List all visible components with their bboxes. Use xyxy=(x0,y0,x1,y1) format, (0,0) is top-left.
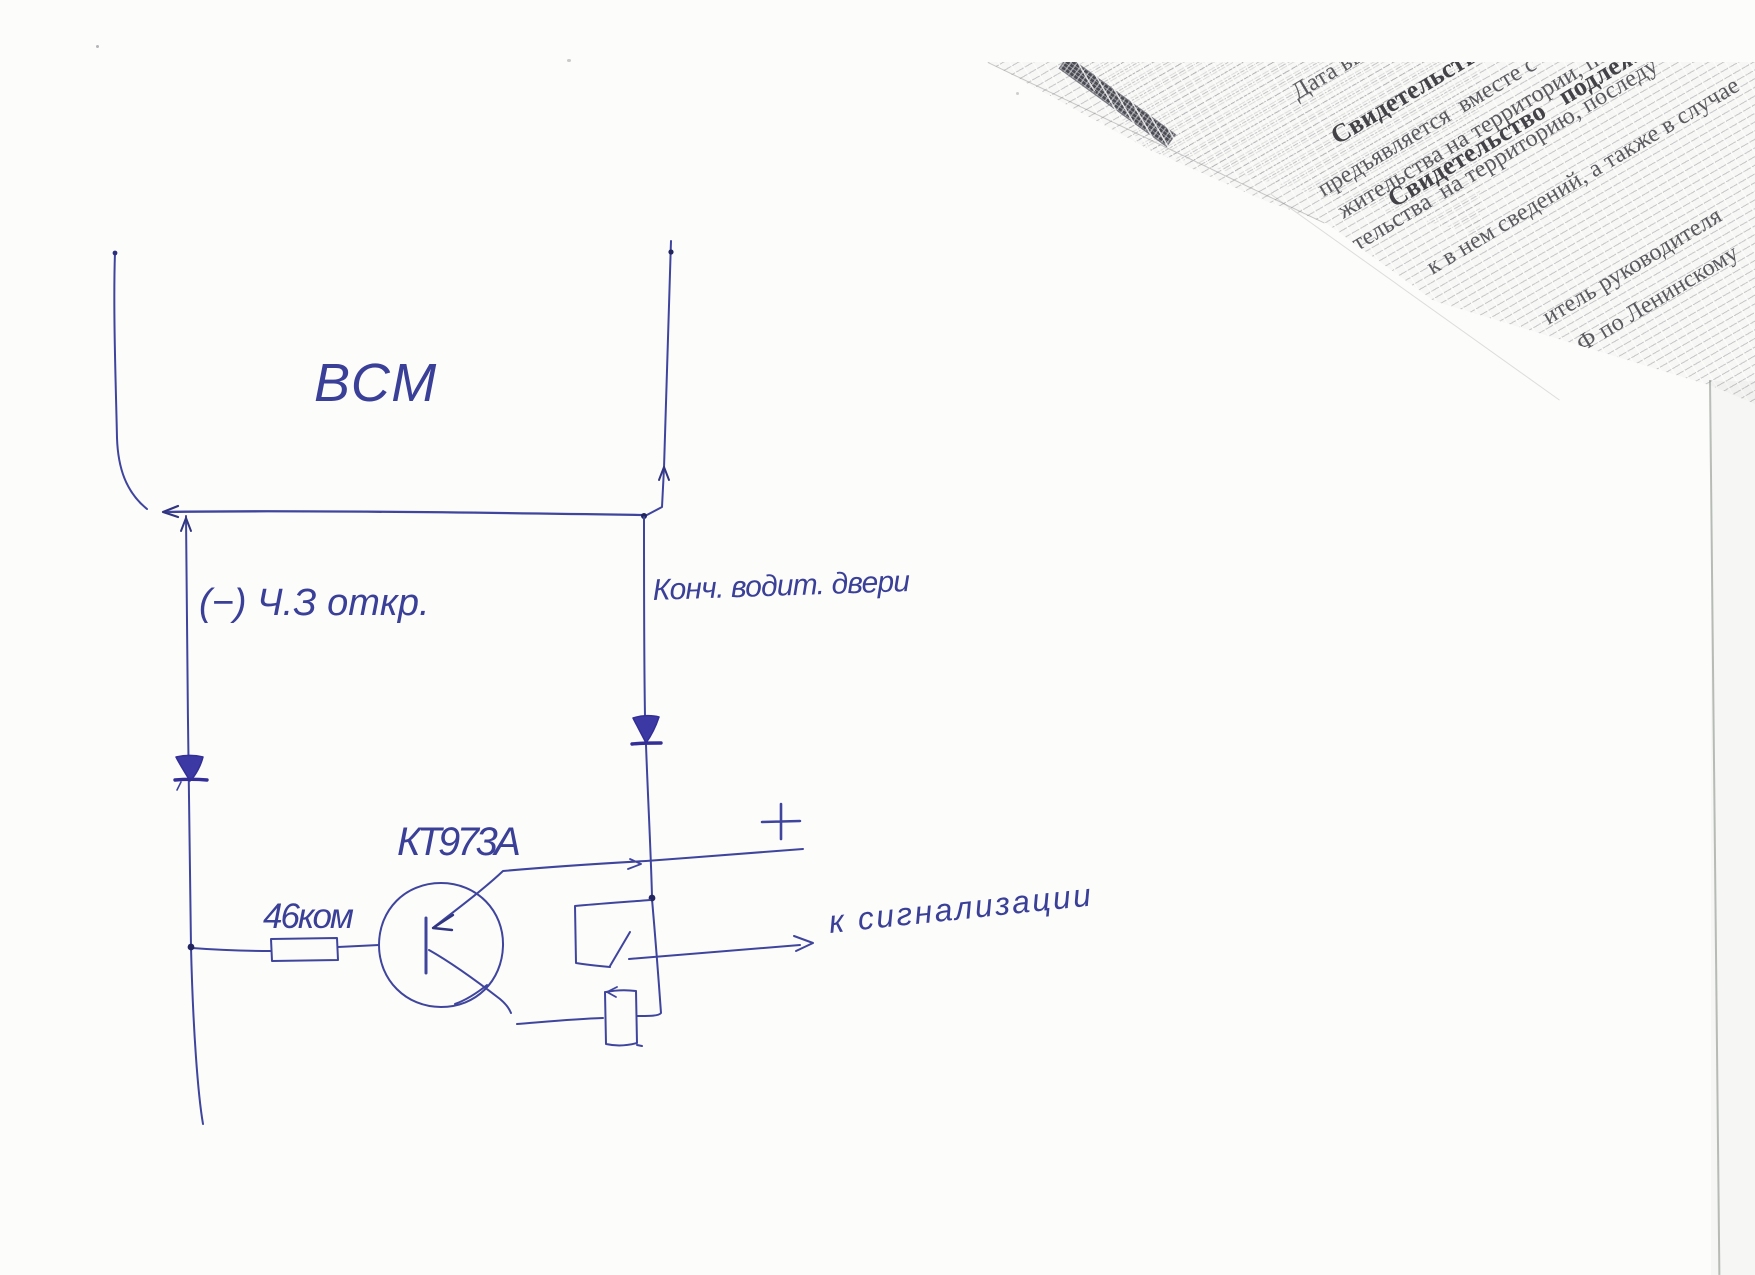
svg-text:Конч. водит. двери: Конч. водит. двери xyxy=(652,565,911,607)
svg-text:46ком: 46ком xyxy=(263,897,354,936)
svg-text:КТ973А: КТ973А xyxy=(397,820,519,864)
svg-text:к сигнализации: к сигнализации xyxy=(827,876,1095,940)
svg-text:ВСМ: ВСМ xyxy=(314,353,438,413)
svg-text:(−) Ч.З откр.: (−) Ч.З откр. xyxy=(199,582,430,624)
